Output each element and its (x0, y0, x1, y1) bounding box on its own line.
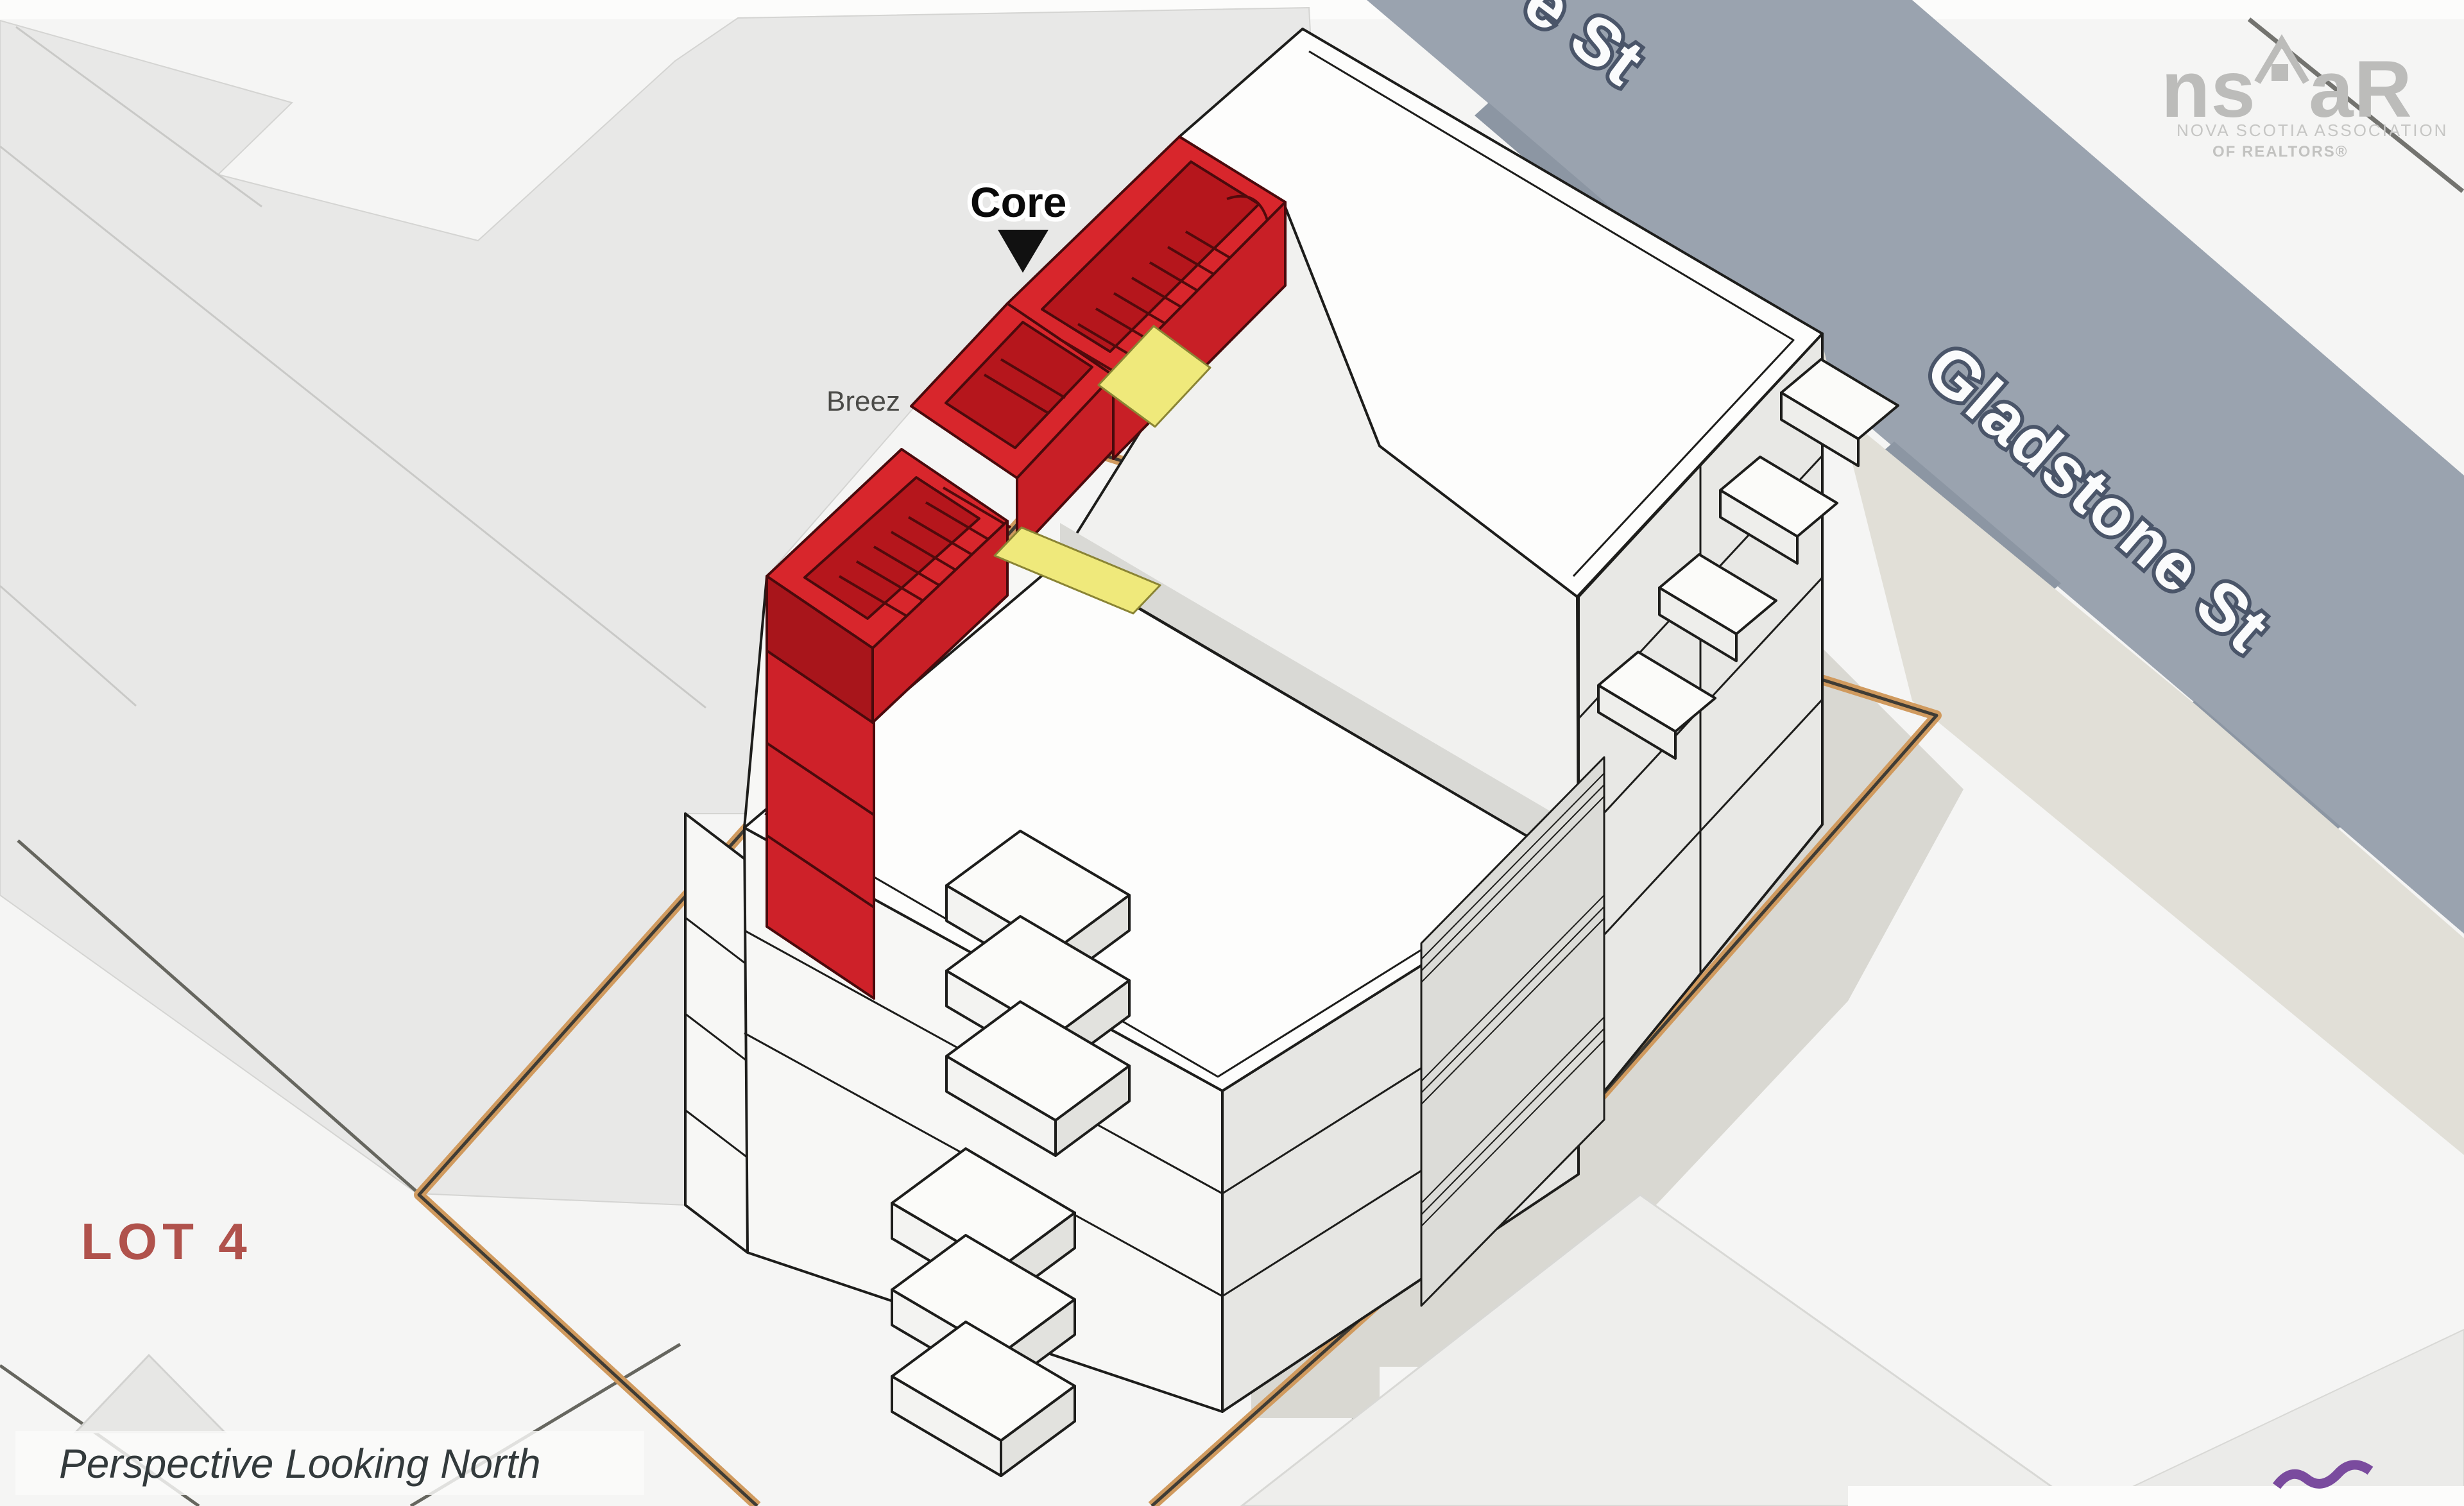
caption: Perspective Looking North (15, 1431, 644, 1495)
breezeway-label: Breez (826, 386, 900, 417)
site-perspective-canvas: e St Gladstone St Breez (0, 0, 2464, 1506)
logo-house-dot-icon (2271, 64, 2288, 81)
core-label: Core (970, 178, 1066, 226)
page-margin-bottom (1848, 1486, 2464, 1506)
caption-text: Perspective Looking North (59, 1441, 541, 1487)
balcony-stack-lower (892, 1149, 1075, 1476)
logo-subtitle-2: OF REALTORS® (2212, 143, 2348, 160)
perspective-figure: e St Gladstone St Breez (0, 0, 2464, 1506)
logo-subtitle-1: NOVA SCOTIA ASSOCIATION (2177, 121, 2448, 140)
base-wing (685, 814, 748, 1253)
balcony-stack-upper (946, 831, 1129, 1156)
lot-label: LOT 4 (81, 1213, 252, 1270)
